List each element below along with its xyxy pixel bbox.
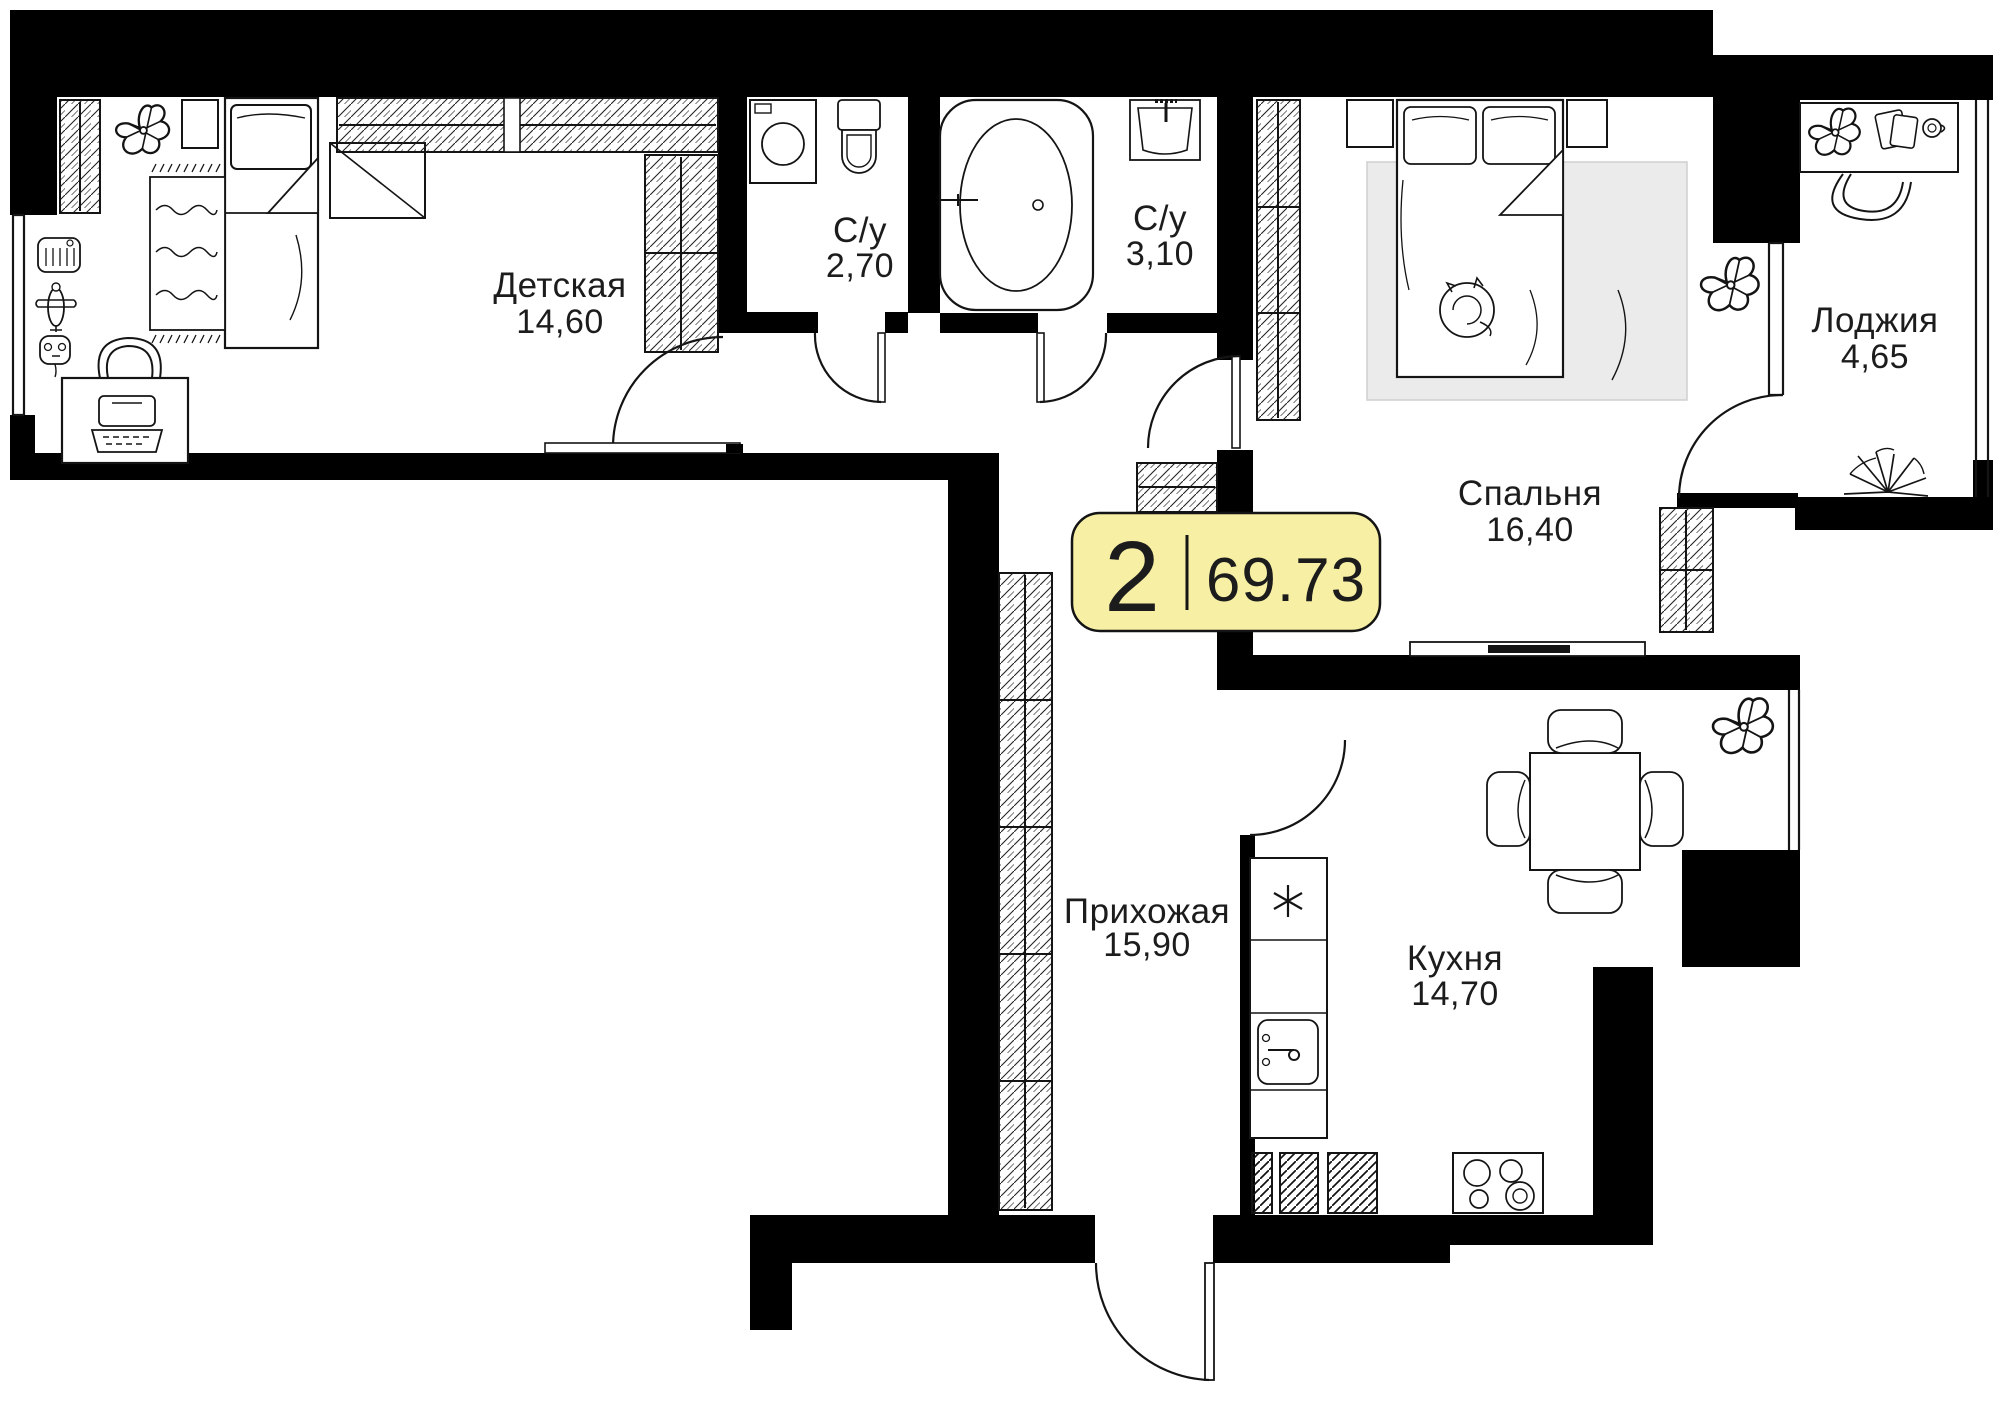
wardrobe-icon [1137, 463, 1217, 512]
dining-table [1487, 710, 1683, 913]
wardrobe-top-icon [337, 98, 718, 152]
chair-icon [1548, 710, 1622, 753]
room-name: С/у [833, 211, 887, 250]
window-loggia-right [1976, 100, 1988, 497]
laptop-icon [92, 396, 162, 452]
room-label-prihozhaya: Прихожая 15,90 [1064, 892, 1230, 964]
chair-icon [1487, 772, 1530, 846]
wardrobe-right-icon [645, 155, 718, 352]
badge-total-area: 69.73 [1206, 546, 1366, 615]
room-area: 16,40 [1486, 511, 1574, 549]
toilet-icon [838, 100, 880, 173]
door-kitchen [1250, 740, 1345, 835]
chair-icon [99, 338, 161, 378]
room-area: 14,70 [1411, 975, 1499, 1013]
loggia-furniture [1800, 103, 1958, 496]
room-name: Лоджия [1811, 301, 1938, 340]
door-bedroom [1148, 356, 1240, 448]
nightstand [182, 100, 218, 148]
room-area: 15,90 [1103, 926, 1191, 964]
room-name: Кухня [1407, 939, 1503, 978]
cabinet-hatched-icon [1252, 1153, 1377, 1213]
plant-spiky-icon [1844, 448, 1928, 496]
window-bedroom-loggia [1769, 243, 1783, 395]
room-label-bathroom-1: С/у 2,70 [826, 211, 894, 285]
nightstand [1567, 100, 1607, 147]
toy-piano-icon [38, 238, 80, 272]
wardrobe-icon [60, 100, 100, 213]
nightstand [1347, 100, 1393, 147]
kitchen-counter [1250, 858, 1327, 1138]
sink-icon [1130, 100, 1200, 160]
wardrobe-icon [1660, 508, 1713, 632]
washing-machine-icon [750, 100, 816, 183]
door-detskaya [545, 337, 743, 453]
room-area: 4,65 [1841, 338, 1909, 376]
wardrobe-icon [999, 573, 1052, 1210]
stove-icon [1453, 1153, 1543, 1213]
room-area: 3,10 [1126, 235, 1194, 273]
door-bathroom-1 [815, 333, 885, 402]
floorplan-svg: Детская 14,60 С/у 2,70 С/у 3,10 Спальня … [0, 0, 2000, 1402]
room-label-bathroom-2: С/у 3,10 [1126, 199, 1194, 273]
room-label-kuhnya: Кухня 14,70 [1407, 939, 1503, 1013]
chair-icon [1548, 870, 1622, 913]
chair-icon [1640, 772, 1683, 846]
bed-double [1397, 100, 1563, 377]
room-name: С/у [1133, 199, 1187, 238]
room-area: 2,70 [826, 247, 894, 285]
badge-rooms-count: 2 [1104, 521, 1160, 633]
room-area: 14,60 [516, 303, 604, 341]
room-label-lodzhiya: Лоджия 4,65 [1811, 301, 1938, 376]
rug [150, 164, 225, 343]
floorplan-canvas: Детская 14,60 С/у 2,70 С/у 3,10 Спальня … [0, 0, 2000, 1402]
bathtub-icon [940, 100, 1093, 310]
kitchen-sink-icon [1258, 1020, 1318, 1084]
desk [62, 338, 188, 463]
wardrobe-icon [1257, 100, 1300, 420]
room-name: Спальня [1458, 474, 1602, 513]
room-label-detskaya: Детская 14,60 [493, 266, 626, 341]
room-label-spalnya: Спальня 16,40 [1458, 474, 1602, 549]
chair-icon [1832, 174, 1911, 220]
door-entrance [1096, 1263, 1214, 1380]
side-table [330, 143, 425, 218]
room-name: Детская [493, 266, 626, 305]
bed-single [225, 98, 318, 348]
game-controller-icon [40, 336, 70, 377]
window-detskaya-left [13, 215, 24, 415]
apartment-badge: 2 69.73 [1072, 513, 1380, 633]
toy-airplane-icon [36, 283, 76, 332]
window-kitchen-nook [1789, 690, 1799, 850]
door-bathroom-2 [1037, 333, 1106, 402]
bathroom-1-fixtures [750, 100, 880, 183]
door-loggia [1679, 395, 1782, 498]
tv-console [1410, 642, 1645, 656]
